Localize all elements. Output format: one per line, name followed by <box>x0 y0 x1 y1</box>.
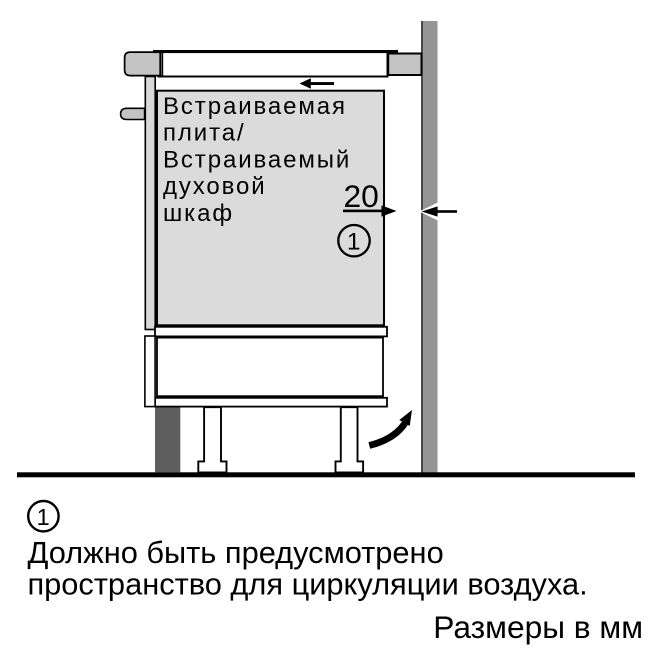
svg-text:Должно быть предусмотрено: Должно быть предусмотрено <box>28 535 444 570</box>
svg-text:плита/: плита/ <box>163 120 246 147</box>
svg-text:духовой: духовой <box>163 173 267 200</box>
svg-text:Размеры в мм: Размеры в мм <box>433 609 643 645</box>
svg-text:20: 20 <box>344 178 379 214</box>
svg-text:пространство для циркуляции во: пространство для циркуляции воздуха. <box>28 567 588 602</box>
svg-text:Встраиваемая: Встраиваемая <box>163 93 347 120</box>
svg-text:1: 1 <box>347 229 361 256</box>
svg-text:шкаф: шкаф <box>163 200 234 227</box>
svg-text:Встраиваемый: Встраиваемый <box>163 146 351 173</box>
svg-text:1: 1 <box>37 504 50 530</box>
